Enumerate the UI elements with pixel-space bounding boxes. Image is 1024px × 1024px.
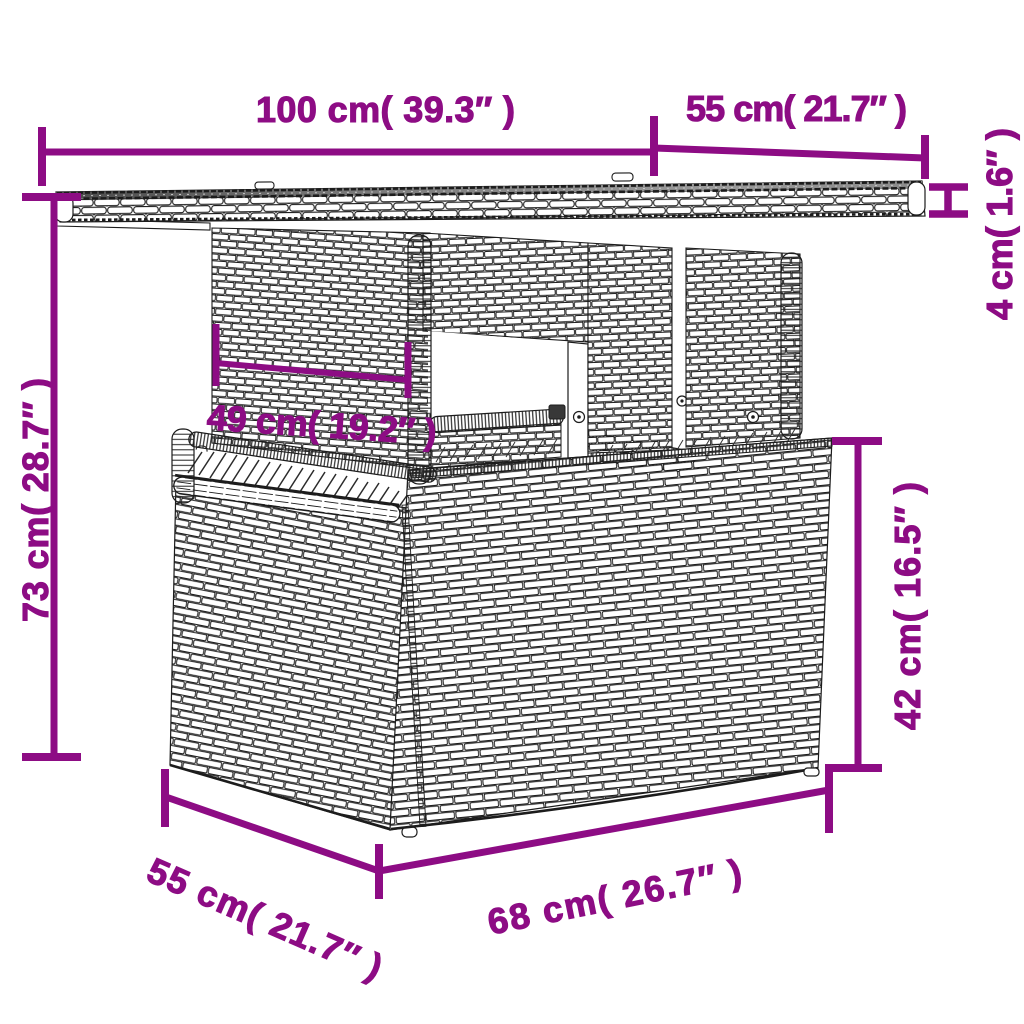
svg-text:73 cm( 28.7″ ): 73 cm( 28.7″ ) [15, 378, 56, 622]
svg-text:4 cm( 1.6″ ): 4 cm( 1.6″ ) [979, 128, 1020, 320]
svg-text:55 cm( 21.7″ ): 55 cm( 21.7″ ) [686, 88, 907, 129]
svg-text:100 cm( 39.3″ ): 100 cm( 39.3″ ) [256, 89, 515, 130]
svg-text:42 cm( 16.5″ ): 42 cm( 16.5″ ) [887, 482, 928, 730]
